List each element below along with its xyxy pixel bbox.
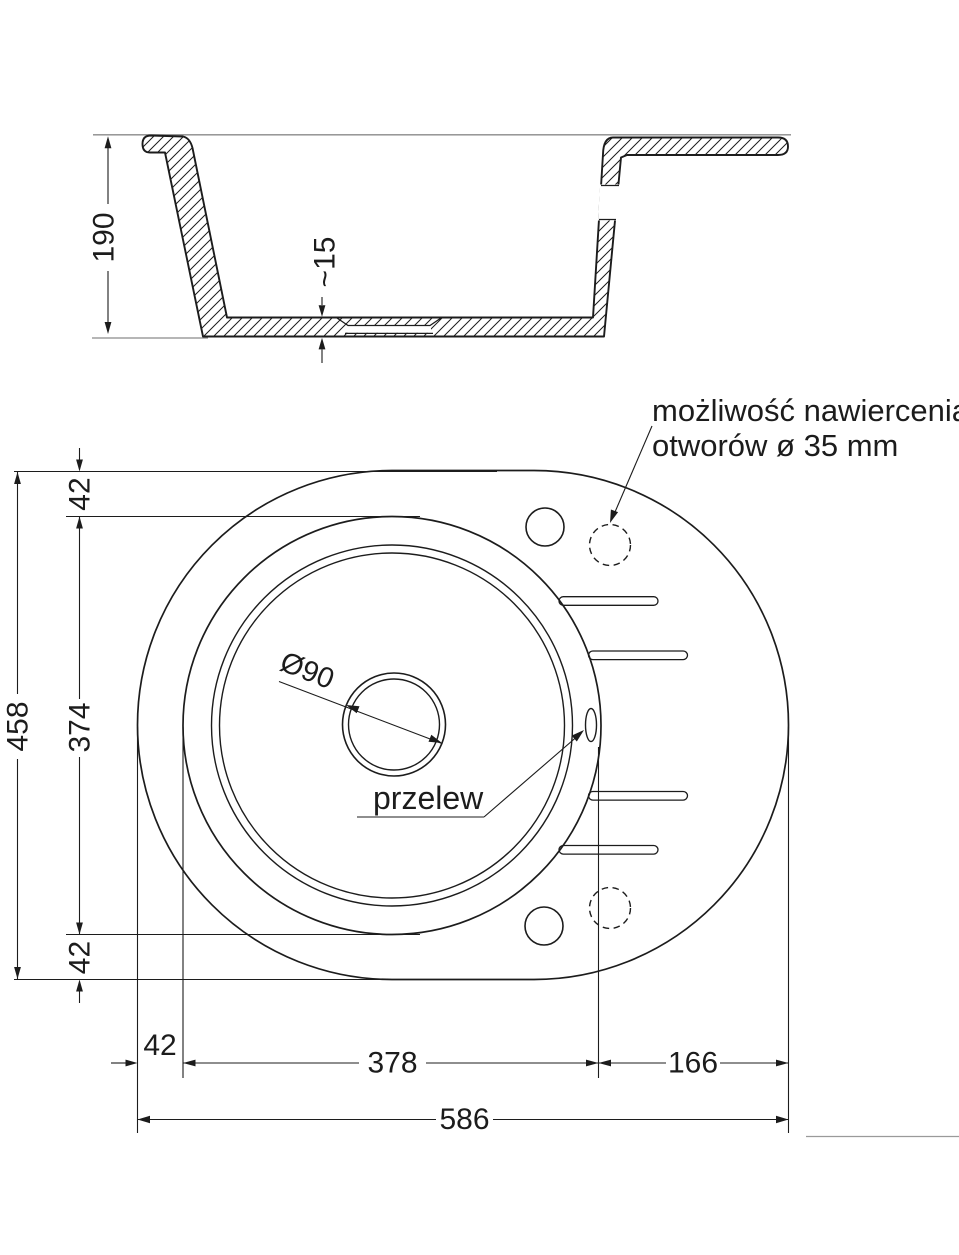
overflow-label: przelew (373, 780, 484, 816)
arrow-down-icon (14, 967, 21, 979)
left-edge-to-bowl-label: 42 (143, 1029, 176, 1062)
drainer-groove (589, 792, 688, 801)
overall-height-label: 458 (2, 701, 35, 751)
dimension-chain-vertical: 42 374 42 (64, 448, 97, 1003)
overall-width-label: 586 (439, 1103, 489, 1136)
optional-hole-bottom-dashed (590, 888, 631, 929)
faucet-hole-top (526, 508, 564, 546)
drill-note-line2: otworów ø 35 mm (652, 428, 898, 463)
drainer-groove (559, 846, 658, 855)
arrow-up-icon (76, 980, 83, 992)
bowl-to-bottom-edge-label: 42 (64, 941, 97, 974)
bowl-width-label: 378 (367, 1047, 417, 1080)
arrow-down-icon (105, 322, 112, 334)
sink-technical-drawing-page: 190 ~15 (0, 0, 959, 1255)
drainer-grooves (559, 597, 688, 854)
sink-oval-outline (138, 471, 789, 980)
arrow-right-icon (126, 1060, 138, 1067)
drainer-groove (589, 651, 688, 660)
drain-inner-circle (349, 679, 440, 770)
bowl-outer-circle (183, 517, 601, 935)
drainer-width-label: 166 (668, 1047, 718, 1080)
drill-note: możliwość nawiercenia otworów ø 35 mm (610, 393, 959, 523)
drain-diameter-label: Ø90 (276, 646, 339, 696)
arrow-up-icon (14, 472, 21, 484)
dimension-overall-width-586: 586 (138, 1103, 789, 1136)
arrow-right-icon (776, 1060, 789, 1067)
arrow-down-icon (319, 305, 326, 317)
top-edge-to-bowl-label: 42 (64, 477, 97, 510)
drain-outer-circle (343, 673, 446, 776)
dimension-recess-15: ~15 (309, 237, 342, 363)
overflow-callout: przelew (357, 730, 584, 817)
arrow-down-icon (76, 460, 83, 472)
leader-arrow-icon (610, 510, 618, 524)
arrow-down-icon (76, 923, 83, 935)
plan-view: możliwość nawiercenia otworów ø 35 mm Ø9… (2, 393, 959, 1136)
arrow-left-icon (138, 1116, 151, 1123)
arrow-left-icon (183, 1060, 196, 1067)
arrow-icon (346, 705, 360, 713)
arrow-right-icon (776, 1116, 789, 1123)
optional-hole-top-dashed (590, 525, 631, 566)
overflow-opening-section (598, 185, 620, 221)
drainer-groove (559, 597, 658, 606)
dimension-depth-190: 190 (88, 136, 121, 334)
depth-dimension-label: 190 (88, 212, 121, 262)
recess-depth-label: ~15 (309, 237, 342, 288)
sink-section-profile (143, 136, 789, 337)
arrow-up-icon (105, 136, 112, 148)
bowl-inner-circle (220, 553, 565, 898)
bowl-diameter-label: 374 (64, 702, 97, 752)
arrow-icon (429, 735, 443, 743)
dimension-overall-height-458: 458 (2, 472, 35, 980)
technical-drawing: 190 ~15 (0, 0, 959, 1255)
arrow-up-icon (319, 338, 326, 350)
section-view: 190 ~15 (88, 135, 792, 363)
bowl-rim-circle (212, 545, 573, 906)
overflow-slot (586, 709, 597, 742)
arrow-right-icon (586, 1060, 599, 1067)
faucet-hole-bottom (525, 907, 563, 945)
arrow-left-icon (599, 1060, 612, 1067)
dimension-chain-horizontal: 42 378 166 (111, 1029, 789, 1080)
drill-note-line1: możliwość nawiercenia (652, 393, 959, 428)
